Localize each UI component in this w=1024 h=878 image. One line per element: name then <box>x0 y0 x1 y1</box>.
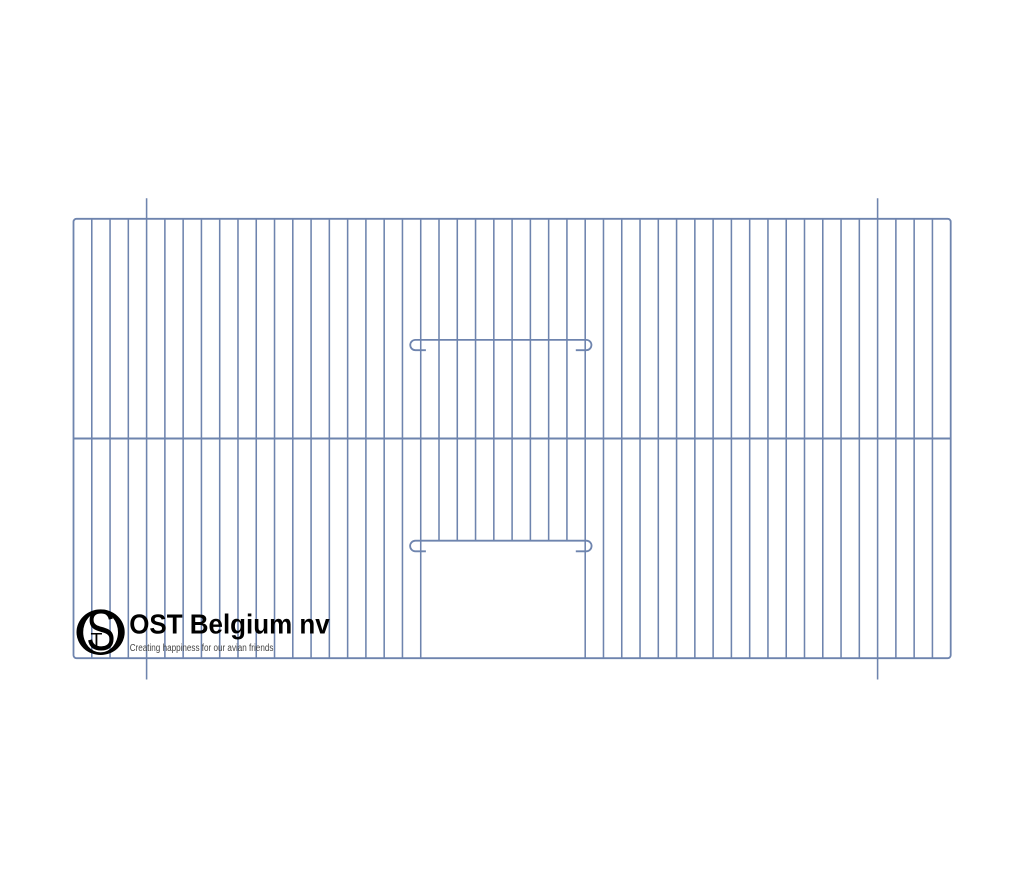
svg-text:OST Belgium nv: OST Belgium nv <box>129 608 330 639</box>
svg-text:T: T <box>91 630 103 652</box>
svg-text:Creating happiness for our avi: Creating happiness for our avian friends <box>130 643 274 654</box>
